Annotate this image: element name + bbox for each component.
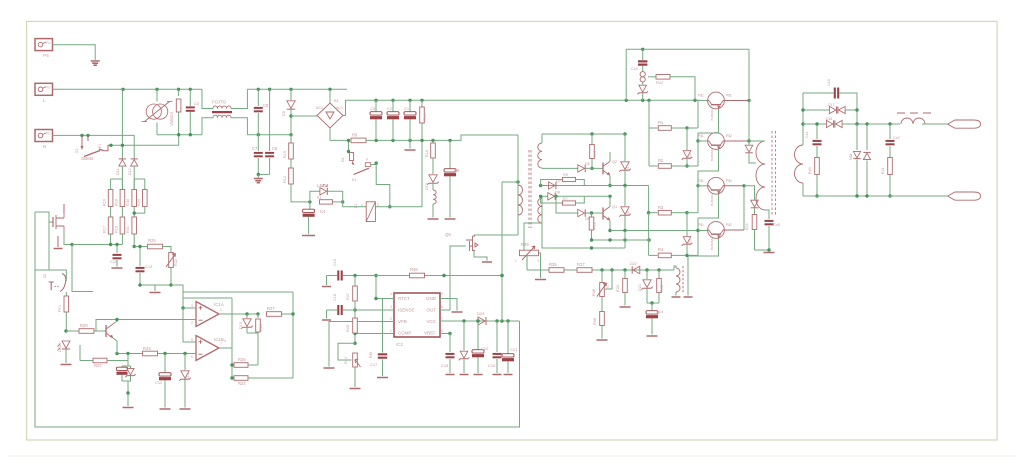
svg-text:D10: D10 [425,183,429,190]
svg-text:2: 2 [390,317,392,321]
svg-text:C9: C9 [454,168,460,173]
svg-text:R15: R15 [283,151,287,158]
svg-text:D14: D14 [186,373,190,380]
svg-text:R9: R9 [563,173,568,177]
svg-text:AC2: AC2 [316,106,323,110]
svg-text:PU: PU [46,132,51,136]
svg-text:D8: D8 [555,190,560,194]
svg-text:C18: C18 [441,363,449,368]
svg-text:R45: R45 [346,325,350,332]
svg-text:R28: R28 [259,324,263,331]
svg-text:R38: R38 [592,289,596,296]
svg-text:R40: R40 [808,167,812,174]
svg-text:D7: D7 [556,180,561,184]
svg-text:Varistor: Varistor [169,111,174,126]
svg-text:D12: D12 [128,168,132,175]
svg-text:3: 3 [537,259,539,263]
svg-text:4: 4 [224,339,226,343]
svg-text:C19: C19 [488,363,496,368]
svg-text:8: 8 [441,329,443,333]
svg-text:Q5: Q5 [445,232,451,237]
svg-text:PU: PU [46,86,51,90]
svg-text:R23: R23 [143,346,151,351]
svg-text:R12: R12 [593,222,597,229]
svg-text:D5: D5 [585,162,590,166]
svg-text:R29: R29 [137,199,141,206]
svg-text:R3: R3 [658,205,664,210]
svg-text:D18: D18 [826,117,832,121]
svg-text:C14: C14 [656,309,664,314]
svg-text:IC1A: IC1A [214,302,224,307]
svg-text:Cx4: Cx4 [631,67,638,71]
svg-text:2: 2 [607,285,609,289]
svg-text:R35: R35 [549,262,557,267]
svg-text:R37: R37 [577,262,585,267]
svg-text:6: 6 [191,355,193,359]
svg-text:R16: R16 [423,114,427,121]
svg-text:C3: C3 [370,106,376,111]
svg-text:P$1: P$1 [698,94,704,98]
svg-text:D4: D4 [688,239,692,244]
svg-text:R4: R4 [658,247,664,252]
svg-text:LED1: LED1 [317,183,329,188]
svg-text:R39: R39 [521,242,529,247]
svg-text:R32: R32 [174,259,178,266]
svg-text:ISENSE: ISENSE [398,308,415,313]
svg-text:R20: R20 [80,323,88,328]
svg-text:D21: D21 [638,284,642,291]
svg-text:COMP: COMP [398,331,412,336]
svg-text:R9: R9 [352,133,358,138]
svg-text:R2: R2 [658,158,664,163]
svg-text:C15: C15 [333,259,337,266]
svg-text:R34: R34 [745,223,749,230]
svg-text:S1: S1 [75,148,79,153]
svg-text:Cx2: Cx2 [893,136,900,140]
svg-text:1: 1 [515,259,517,263]
svg-text:R30: R30 [126,199,130,206]
svg-text:R26: R26 [238,357,246,362]
svg-text:Q1: Q1 [612,205,617,209]
svg-text:7: 7 [220,342,222,346]
svg-text:R16: R16 [103,199,107,206]
svg-text:K1: K1 [352,178,356,182]
svg-text:U$8: U$8 [849,154,853,160]
svg-text:C20: C20 [481,346,489,351]
svg-text:P$1: P$1 [698,223,704,227]
svg-text:D9: D9 [282,111,286,116]
svg-text:R24: R24 [238,381,246,386]
svg-text:R36: R36 [593,318,597,325]
svg-text:P$2: P$2 [726,134,732,138]
svg-text:R25: R25 [148,238,156,243]
svg-text:Cx1: Cx1 [805,131,809,138]
svg-text:N: N [43,144,47,150]
svg-text:P$2: P$2 [726,179,732,183]
svg-text:AC1: AC1 [336,106,343,110]
svg-text:PE: PE [43,53,49,59]
svg-text:C8: C8 [263,103,269,108]
svg-text:5: 5 [191,338,193,342]
svg-text:IC2: IC2 [396,342,403,347]
svg-text:R44: R44 [344,357,348,364]
svg-text:PT1: PT1 [58,305,62,312]
svg-text:D1: D1 [626,166,630,171]
svg-text:R7: R7 [563,197,568,201]
svg-text:R43: R43 [660,285,664,292]
svg-text:C13: C13 [145,264,153,269]
svg-text:GND: GND [426,296,437,301]
svg-text:C7: C7 [252,146,258,151]
svg-text:R19: R19 [114,226,118,233]
svg-text:P: P [366,158,368,162]
svg-text:R41: R41 [881,167,885,174]
svg-text:R31: R31 [126,226,130,233]
svg-text:R46: R46 [410,267,418,272]
svg-text:3: 3 [191,304,193,308]
svg-text:B1: B1 [334,98,340,103]
svg-text:BU508A: BU508A [710,149,714,161]
svg-text:PU: PU [46,41,51,45]
svg-text:R47: R47 [346,293,350,300]
svg-text:R17: R17 [103,226,107,233]
svg-text:BU508A: BU508A [710,108,714,120]
svg-text:C6: C6 [272,146,278,151]
svg-text:Cx5: Cx5 [773,222,781,227]
svg-text:R1: R1 [658,120,664,125]
svg-text:4: 4 [390,292,392,296]
svg-text:VCC: VCC [426,319,436,324]
svg-text:C16: C16 [333,294,337,301]
svg-text:D2: D2 [626,211,630,216]
svg-text:L: L [43,98,46,104]
svg-text:1: 1 [361,203,363,207]
svg-text:P$1: P$1 [698,134,704,138]
svg-text:D17: D17 [828,103,834,107]
svg-text:P$2: P$2 [726,94,732,98]
svg-text:VFB: VFB [398,319,407,324]
svg-text:7: 7 [441,317,443,321]
svg-text:R12: R12 [283,176,287,183]
svg-text:R18: R18 [114,199,118,206]
svg-text:IC1B: IC1B [214,337,224,342]
svg-text:Ö1: Ö1 [341,157,345,162]
svg-text:F1: F1 [98,144,102,148]
svg-text:R33: R33 [616,285,620,292]
svg-text:Cx3: Cx3 [827,79,831,86]
svg-text:C21: C21 [510,347,518,352]
svg-text:3: 3 [390,305,392,309]
svg-text:R46: R46 [369,352,373,358]
svg-text:D23: D23 [477,311,485,316]
svg-text:LED2: LED2 [58,343,62,353]
svg-text:6: 6 [441,305,443,309]
svg-text:SBM2: SBM2 [81,156,94,161]
svg-text:FOJTO: FOJTO [212,100,227,105]
svg-text:C17: C17 [370,362,378,367]
svg-text:P$2: P$2 [726,223,732,227]
svg-text:C1: C1 [404,106,410,111]
svg-text:R42: R42 [656,80,664,85]
svg-text:5: 5 [441,292,443,296]
svg-text:K1: K1 [354,203,358,208]
svg-text:R27: R27 [267,306,275,311]
svg-text:2: 2 [191,321,193,325]
svg-text:C2: C2 [387,106,393,111]
svg-text:D11: D11 [116,169,120,175]
svg-text:BU508A: BU508A [710,238,714,250]
svg-text:R22: R22 [94,363,102,368]
svg-text:D22: D22 [630,262,637,266]
svg-text:C5: C5 [194,102,199,106]
svg-text:P$1: P$1 [698,179,704,183]
svg-text:BU508A: BU508A [710,193,714,205]
svg-text:1: 1 [390,329,392,333]
svg-text:VREF: VREF [424,331,436,336]
svg-text:RTCT: RTCT [398,296,410,301]
svg-text:D3: D3 [688,153,692,158]
svg-text:C4: C4 [320,209,326,214]
svg-text:D15: D15 [239,322,243,329]
svg-text:C12: C12 [155,380,163,385]
svg-text:R11: R11 [593,150,597,157]
svg-text:R10: R10 [425,150,429,157]
svg-text:1: 1 [220,308,222,312]
svg-text:Q2: Q2 [612,160,617,164]
svg-text:S2: S2 [43,274,47,278]
svg-text:OUT: OUT [427,308,437,313]
